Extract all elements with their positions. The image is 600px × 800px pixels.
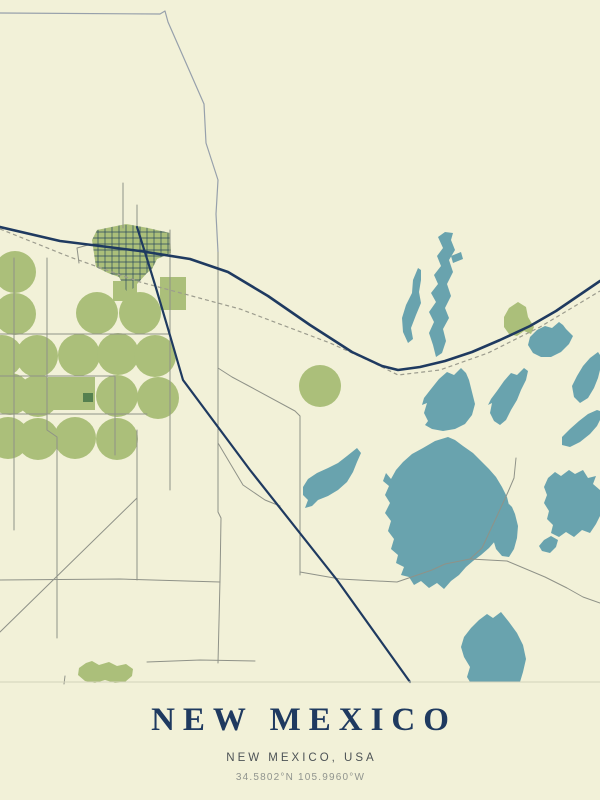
crop-circle — [0, 293, 36, 335]
lake — [303, 448, 361, 508]
crop-circle — [58, 334, 100, 376]
layer-lakes — [303, 232, 600, 682]
lake — [488, 368, 528, 425]
section-road — [147, 660, 255, 662]
crop-circle — [17, 418, 59, 460]
field-patch-dark — [83, 393, 93, 402]
lake — [461, 612, 526, 682]
crop-circle — [299, 365, 341, 407]
crop-circle — [137, 377, 179, 419]
lake — [528, 322, 573, 357]
crop-circle — [0, 251, 36, 293]
lake — [562, 410, 600, 447]
crop-circle — [96, 375, 138, 417]
section-road — [0, 498, 137, 632]
map-svg — [0, 0, 600, 690]
section-road — [218, 368, 300, 575]
crop-circle — [16, 335, 58, 377]
lake — [402, 268, 421, 343]
lake — [422, 368, 475, 431]
section-road — [0, 579, 220, 582]
crop-circle — [97, 333, 139, 375]
crop-circle — [54, 417, 96, 459]
lake — [429, 232, 455, 357]
lake — [539, 536, 558, 553]
crop-circle — [96, 418, 138, 460]
boundary-line — [0, 11, 218, 252]
field-patch — [160, 277, 186, 310]
lake — [544, 470, 600, 537]
field-patch — [113, 281, 137, 301]
poster-coordinates: 34.5802°N 105.9960°W — [1, 772, 600, 783]
lake — [383, 437, 510, 589]
rural-road — [470, 559, 600, 603]
field-patch — [78, 661, 133, 683]
crop-circle — [76, 292, 118, 334]
map-canvas — [0, 0, 600, 690]
poster-title: NEW MEXICO — [8, 702, 600, 739]
title-block: NEW MEXICO NEW MEXICO, USA 34.5802°N 105… — [0, 694, 600, 783]
rural-road — [64, 676, 65, 684]
map-poster: NEW MEXICO NEW MEXICO, USA 34.5802°N 105… — [0, 0, 600, 800]
section-road — [218, 252, 221, 663]
lake — [572, 352, 600, 403]
poster-subtitle: NEW MEXICO, USA — [3, 752, 600, 764]
